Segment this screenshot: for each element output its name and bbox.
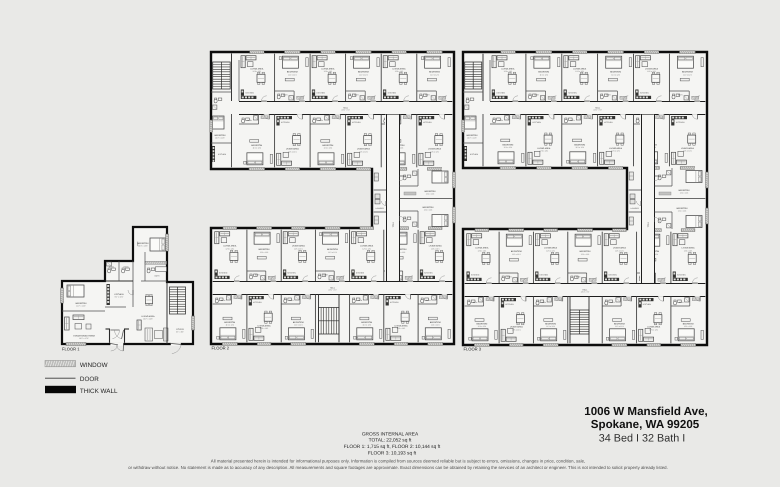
svg-text:HALL: HALL xyxy=(136,242,139,247)
svg-text:11'2" x 12'4": 11'2" x 12'4" xyxy=(76,305,86,308)
svg-text:BEDROOM: BEDROOM xyxy=(538,71,549,74)
svg-text:All material presented herein: All material presented herein is intende… xyxy=(211,459,585,464)
svg-text:12'6 x 13'1: 12'6 x 13'1 xyxy=(430,150,439,153)
svg-text:6'1" x 9'4": 6'1" x 9'4" xyxy=(176,331,184,334)
svg-text:BATH: BATH xyxy=(534,94,539,97)
svg-text:10'2" x 11'6": 10'2" x 11'6" xyxy=(215,137,225,140)
svg-text:11'2 x 12'4: 11'2 x 12'4 xyxy=(430,73,438,76)
svg-text:KITCHEN: KITCHEN xyxy=(471,273,480,276)
svg-text:12'6 x 13'1: 12'6 x 13'1 xyxy=(611,150,620,153)
svg-text:KITCHEN: KITCHEN xyxy=(253,301,262,304)
svg-text:LAUNDRY: LAUNDRY xyxy=(376,207,385,210)
svg-text:12'6 x 13'1: 12'6 x 13'1 xyxy=(397,327,406,330)
svg-text:KITCHEN: KITCHEN xyxy=(281,121,290,124)
svg-text:BEDROOM: BEDROOM xyxy=(425,190,436,193)
svg-text:12'6 x 13'1: 12'6 x 13'1 xyxy=(288,150,297,153)
svg-text:KITCHEN: KITCHEN xyxy=(219,271,228,274)
svg-text:12'6 x 13'1: 12'6 x 13'1 xyxy=(395,70,404,73)
svg-text:BATH: BATH xyxy=(576,276,581,279)
svg-text:11'2 x 12'4: 11'2 x 12'4 xyxy=(260,251,268,254)
svg-text:11'2 x 12'4: 11'2 x 12'4 xyxy=(424,209,432,212)
svg-text:KITCHEN: KITCHEN xyxy=(497,91,506,94)
svg-text:BATH: BATH xyxy=(499,119,504,122)
svg-text:Spokane, WA 99205: Spokane, WA 99205 xyxy=(591,418,700,431)
svg-text:12'6 x 13'1: 12'6 x 13'1 xyxy=(294,247,303,250)
svg-text:HALL: HALL xyxy=(595,106,601,109)
svg-text:BEDROOM: BEDROOM xyxy=(683,322,694,325)
svg-text:11'2 x 12'4: 11'2 x 12'4 xyxy=(581,253,589,256)
svg-text:11'2 x 12'4: 11'2 x 12'4 xyxy=(504,146,512,149)
svg-text:LIVING AREA: LIVING AREA xyxy=(360,245,374,248)
svg-text:11'2 x 12'4: 11'2 x 12'4 xyxy=(678,210,686,213)
svg-text:KITCHEN: KITCHEN xyxy=(388,91,397,94)
svg-text:10'4" x 15'6": 10'4" x 15'6" xyxy=(138,245,148,248)
svg-text:11'2 x 12'4: 11'2 x 12'4 xyxy=(540,73,548,76)
svg-text:LIVING AREA: LIVING AREA xyxy=(573,67,587,70)
svg-text:KITCHEN: KITCHEN xyxy=(568,91,577,94)
svg-text:FLOOR 1: FLOOR 1 xyxy=(62,347,80,352)
svg-text:LIVING AREA: LIVING AREA xyxy=(321,67,335,70)
svg-text:BEDROOM: BEDROOM xyxy=(251,144,262,147)
svg-text:BEDROOM: BEDROOM xyxy=(679,189,690,192)
svg-text:BEDROOM: BEDROOM xyxy=(323,144,334,147)
svg-text:KITCHEN: KITCHEN xyxy=(356,271,365,274)
svg-text:LAUNDRY: LAUNDRY xyxy=(631,207,640,210)
svg-text:LIVING AREA: LIVING AREA xyxy=(613,247,627,250)
svg-text:LIVING AREA: LIVING AREA xyxy=(292,245,306,248)
svg-text:12'6 x 13'1: 12'6 x 13'1 xyxy=(684,249,693,252)
svg-text:LIVING AREA: LIVING AREA xyxy=(393,67,407,70)
svg-text:HALL: HALL xyxy=(582,288,588,291)
svg-text:12'6 x 13'1: 12'6 x 13'1 xyxy=(575,70,584,73)
svg-text:BEDROOM: BEDROOM xyxy=(361,321,372,324)
svg-text:KITCHEN: KITCHEN xyxy=(423,121,432,124)
svg-text:KITCHEN: KITCHEN xyxy=(608,273,617,276)
svg-text:LIVING AREA: LIVING AREA xyxy=(428,148,442,151)
svg-text:12'6 x 13'1: 12'6 x 13'1 xyxy=(512,328,521,331)
svg-text:11'2 x 12'4: 11'2 x 12'4 xyxy=(575,146,583,149)
svg-text:BEDROOM: BEDROOM xyxy=(423,206,434,209)
svg-text:12'6 x 13'1: 12'6 x 13'1 xyxy=(647,70,656,73)
svg-text:BEDROOM: BEDROOM xyxy=(259,248,270,251)
svg-text:LIVING AREA: LIVING AREA xyxy=(395,324,409,327)
svg-text:FLOOR 3: FLOOR 3 xyxy=(464,347,482,352)
svg-text:11'2 x 12'4: 11'2 x 12'4 xyxy=(611,73,619,76)
svg-text:BATH: BATH xyxy=(155,275,160,278)
svg-text:BEDROOM: BEDROOM xyxy=(580,250,591,253)
svg-text:BEDROOM: BEDROOM xyxy=(293,321,304,324)
svg-text:LIVING AREA: LIVING AREA xyxy=(223,245,237,248)
svg-text:LIVING AREA: LIVING AREA xyxy=(682,247,696,250)
svg-text:11'2 x 12'4: 11'2 x 12'4 xyxy=(294,324,302,327)
svg-text:13'2" x 14'6": 13'2" x 14'6" xyxy=(143,318,153,321)
svg-text:TOTAL: 22,052 sq ft: TOTAL: 22,052 sq ft xyxy=(369,438,412,444)
svg-text:FLOOR 1: 1,715 sq ft, FLOOR 2:: FLOOR 1: 1,715 sq ft, FLOOR 2: 10,144 sq… xyxy=(344,444,441,450)
svg-text:12'6 x 13'1: 12'6 x 13'1 xyxy=(431,247,440,250)
svg-text:KITCHEN: KITCHEN xyxy=(470,153,479,156)
svg-text:11'2 x 12'4: 11'2 x 12'4 xyxy=(431,324,439,327)
svg-text:BEDROOM: BEDROOM xyxy=(76,302,87,305)
svg-text:BEDROOM: BEDROOM xyxy=(677,207,688,210)
svg-text:LIVING AREA: LIVING AREA xyxy=(645,67,659,70)
svg-text:LIVING AREA: LIVING AREA xyxy=(510,326,524,329)
svg-text:11'2 x 12'4: 11'2 x 12'4 xyxy=(253,147,261,150)
svg-text:KITCHEN: KITCHEN xyxy=(643,303,652,306)
svg-text:LIVING AREA: LIVING AREA xyxy=(142,315,156,318)
svg-text:BATH: BATH xyxy=(319,119,324,122)
svg-text:12'6 x 13'1: 12'6 x 13'1 xyxy=(260,327,269,330)
svg-text:11'2 x 12'4: 11'2 x 12'4 xyxy=(512,253,520,256)
svg-text:BEDROOM: BEDROOM xyxy=(138,242,149,245)
svg-text:12'6 x 13'1: 12'6 x 13'1 xyxy=(226,247,235,250)
svg-text:11'2 x 12'4: 11'2 x 12'4 xyxy=(324,147,332,150)
svg-text:BEDROOM: BEDROOM xyxy=(477,322,488,325)
svg-text:FLOOR 3: 10,193 sq ft: FLOOR 3: 10,193 sq ft xyxy=(368,451,417,457)
svg-text:LIVING AREA: LIVING AREA xyxy=(537,147,551,150)
svg-text:FOYER: FOYER xyxy=(176,328,184,331)
svg-text:11'2 x 12'4: 11'2 x 12'4 xyxy=(615,325,623,328)
svg-text:KITCHEN: KITCHEN xyxy=(640,91,649,94)
svg-text:KITCHEN: KITCHEN xyxy=(246,91,255,94)
svg-text:12'6 x 13'1: 12'6 x 13'1 xyxy=(504,70,513,73)
svg-text:HALL: HALL xyxy=(647,222,650,228)
svg-text:BEDROOM: BEDROOM xyxy=(358,71,369,74)
svg-text:WINDOW: WINDOW xyxy=(80,362,108,369)
svg-text:BEDROOM: BEDROOM xyxy=(215,134,226,137)
svg-text:BATH: BATH xyxy=(542,301,547,304)
svg-text:BEDROOM: BEDROOM xyxy=(467,134,478,137)
svg-text:11'2 x 12'4: 11'2 x 12'4 xyxy=(359,73,367,76)
svg-text:34 Bed I 32 Bath I: 34 Bed I 32 Bath I xyxy=(599,433,685,445)
svg-text:11'2 x 12'4: 11'2 x 12'4 xyxy=(683,73,691,76)
svg-text:BATH: BATH xyxy=(354,94,359,97)
svg-text:BEDROOM: BEDROOM xyxy=(574,143,585,146)
svg-text:HALL: HALL xyxy=(343,106,349,109)
svg-text:11'2 x 12'4: 11'2 x 12'4 xyxy=(684,325,692,328)
svg-text:12'6 x 13'1: 12'6 x 13'1 xyxy=(324,70,333,73)
svg-text:12'6 x 13'1: 12'6 x 13'1 xyxy=(615,249,624,252)
svg-text:GROSS INTERNAL AREA: GROSS INTERNAL AREA xyxy=(362,431,419,437)
svg-text:or withdraw without notice. No: or withdraw without notice. No statement… xyxy=(128,465,668,470)
svg-text:KITCHEN: KITCHEN xyxy=(540,273,549,276)
svg-text:LIVING AREA: LIVING AREA xyxy=(250,67,264,70)
svg-text:KITCHEN: KITCHEN xyxy=(218,153,227,156)
svg-text:CONDITIONED ROOM: CONDITIONED ROOM xyxy=(73,335,95,338)
svg-text:BATH: BATH xyxy=(124,266,129,269)
svg-text:9'2" x 10'1": 9'2" x 10'1" xyxy=(115,296,124,299)
svg-text:11'2 x 12'4: 11'2 x 12'4 xyxy=(226,324,234,327)
svg-text:BEDROOM: BEDROOM xyxy=(224,321,235,324)
svg-text:10'2" x 11'6": 10'2" x 11'6" xyxy=(467,137,477,140)
svg-text:BEDROOM: BEDROOM xyxy=(287,71,298,74)
svg-text:1006 W Mansfield Ave,: 1006 W Mansfield Ave, xyxy=(584,405,708,418)
svg-text:LIVING AREA: LIVING AREA xyxy=(475,247,489,250)
svg-text:11'2 x 12'4: 11'2 x 12'4 xyxy=(288,73,296,76)
svg-text:LIVING AREA: LIVING AREA xyxy=(258,324,272,327)
svg-text:KITCHEN: KITCHEN xyxy=(287,271,296,274)
svg-text:BEDROOM: BEDROOM xyxy=(429,71,440,74)
svg-text:HALL: HALL xyxy=(392,222,395,228)
svg-text:KITCHEN: KITCHEN xyxy=(317,91,326,94)
svg-text:13'2" x 17'4": 13'2" x 17'4" xyxy=(79,337,89,340)
svg-text:12'6 x 13'1: 12'6 x 13'1 xyxy=(683,150,692,153)
svg-text:LIVING AREA: LIVING AREA xyxy=(429,245,443,248)
svg-text:BEDROOM: BEDROOM xyxy=(503,143,514,146)
svg-text:KITCHEN: KITCHEN xyxy=(424,271,433,274)
svg-text:BATH: BATH xyxy=(109,266,114,269)
svg-text:DOOR: DOOR xyxy=(80,376,99,383)
svg-text:BEDROOM: BEDROOM xyxy=(430,321,441,324)
svg-text:11'2 x 12'4: 11'2 x 12'4 xyxy=(546,325,554,328)
svg-text:12'6 x 13'1: 12'6 x 13'1 xyxy=(362,247,371,250)
svg-text:KITCHEN: KITCHEN xyxy=(505,303,514,306)
svg-text:KITCHEN: KITCHEN xyxy=(676,121,685,124)
svg-text:HALL: HALL xyxy=(330,286,336,289)
svg-text:11'2 x 12'4: 11'2 x 12'4 xyxy=(426,193,434,196)
svg-text:12'6 x 13'1: 12'6 x 13'1 xyxy=(649,328,658,331)
svg-text:LIVING AREA: LIVING AREA xyxy=(647,326,661,329)
svg-text:12'6 x 13'1: 12'6 x 13'1 xyxy=(359,150,368,153)
svg-text:12'6 x 13'1: 12'6 x 13'1 xyxy=(253,70,262,73)
svg-text:LIVING AREA: LIVING AREA xyxy=(357,148,371,151)
svg-text:12'6 x 13'1: 12'6 x 13'1 xyxy=(478,249,487,252)
svg-text:LIVING AREA: LIVING AREA xyxy=(501,67,515,70)
svg-text:11'2 x 12'4: 11'2 x 12'4 xyxy=(478,325,486,328)
svg-text:12'6 x 13'1: 12'6 x 13'1 xyxy=(546,249,555,252)
svg-text:KITCHEN: KITCHEN xyxy=(677,273,686,276)
svg-text:BEDROOM: BEDROOM xyxy=(610,71,621,74)
svg-text:BEDROOM: BEDROOM xyxy=(682,71,693,74)
svg-text:FLOOR 2: FLOOR 2 xyxy=(212,346,230,351)
svg-text:THICK WALL: THICK WALL xyxy=(80,388,118,395)
svg-text:11'2 x 12'4: 11'2 x 12'4 xyxy=(680,192,688,195)
svg-text:KITCHEN: KITCHEN xyxy=(114,293,124,296)
svg-text:LIVING AREA: LIVING AREA xyxy=(681,147,695,150)
svg-text:11'2 x 12'4: 11'2 x 12'4 xyxy=(328,251,336,254)
svg-text:BEDROOM: BEDROOM xyxy=(327,248,338,251)
svg-text:BEDROOM: BEDROOM xyxy=(614,322,625,325)
svg-text:KITCHEN: KITCHEN xyxy=(352,121,361,124)
svg-text:KITCHEN: KITCHEN xyxy=(390,301,399,304)
svg-text:KITCHEN: KITCHEN xyxy=(604,121,613,124)
svg-text:BATH: BATH xyxy=(426,299,431,302)
svg-text:KITCHEN: KITCHEN xyxy=(533,121,542,124)
svg-text:LIVING AREA: LIVING AREA xyxy=(544,247,558,250)
svg-text:LIVING AREA: LIVING AREA xyxy=(609,147,623,150)
svg-text:12'6 x 13'1: 12'6 x 13'1 xyxy=(540,150,549,153)
svg-text:BEDROOM: BEDROOM xyxy=(511,250,522,253)
svg-text:11'2 x 12'4: 11'2 x 12'4 xyxy=(362,324,370,327)
svg-text:BEDROOM: BEDROOM xyxy=(545,322,556,325)
svg-text:LIVING AREA: LIVING AREA xyxy=(286,148,300,151)
